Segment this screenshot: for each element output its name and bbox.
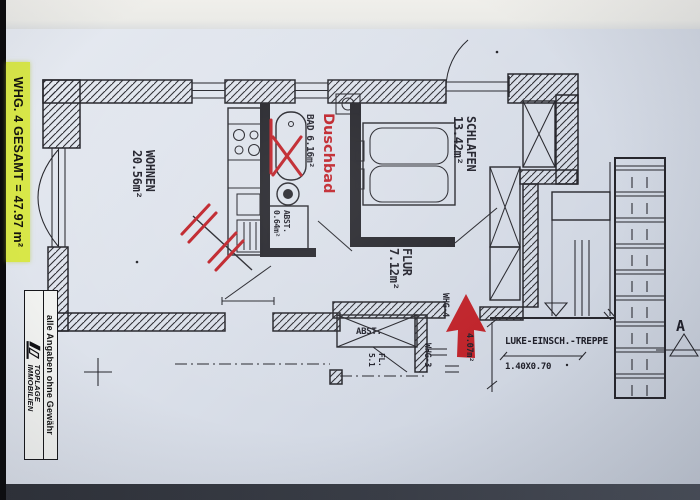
section-marker: A — [656, 317, 700, 356]
door-swing-arc — [446, 40, 468, 87]
stove-burner — [249, 145, 260, 156]
label-treppe-size: 1.40X0.70 — [505, 362, 551, 372]
disclaimer-text: alle Angaben ohne Gewähr — [43, 291, 57, 459]
label-abst: ABST. — [356, 327, 382, 337]
living-room-door — [222, 266, 274, 305]
balcony-door-swing-arc — [38, 150, 58, 246]
attic-ladder — [615, 158, 665, 398]
agency-stamp: alle Angaben ohne Gewähr TOPLAGE IMMOBIL… — [24, 290, 58, 460]
whg4-total-text: WHG. 4 GESAMT = 47.97 m² — [11, 77, 25, 247]
red-strike — [209, 233, 236, 262]
stove-burner — [234, 130, 245, 141]
label-bad-abst: ABST.0.64m² — [272, 210, 291, 237]
red-strike — [189, 213, 216, 242]
floor-plan-drawing: A WOHNEN20.56m² BA — [0, 0, 700, 500]
agency-logo-icon — [26, 339, 42, 361]
label-flur: FLUR7.12m² — [387, 248, 414, 290]
stair-area — [490, 162, 616, 320]
label-whg3: WHG-3 — [422, 343, 432, 367]
label-schlafen: SCHLAFEN13.42m² — [451, 116, 478, 171]
level-marker — [545, 303, 567, 316]
bath-door-leaf — [318, 221, 352, 251]
label-wohnen: WOHNEN20.56m² — [130, 150, 157, 198]
label-bad: BAD6.16m² — [304, 114, 315, 168]
kitchen-unit — [228, 108, 262, 255]
kitchen-sink — [237, 194, 260, 215]
stove-burner — [235, 146, 243, 154]
label-wf-area: 4.07m² — [464, 333, 474, 362]
double-bed — [355, 123, 455, 205]
label-fl: FL.5.1 — [367, 353, 386, 367]
entry-door — [446, 40, 509, 97]
agency-brand: TOPLAGE IMMOBILIEN — [27, 365, 42, 412]
whg4-total-highlight: WHG. 4 GESAMT = 47.97 m² — [6, 62, 30, 262]
stove-burner — [250, 131, 258, 139]
label-whg4: WHG-4 — [440, 293, 450, 317]
label-duschbad-red: Duschbad — [320, 113, 336, 193]
red-strike — [182, 205, 209, 234]
scanned-floorplan-photo: A WOHNEN20.56m² BA — [0, 0, 700, 500]
label-treppe: LUKE-EINSCH.-TREPPE — [505, 336, 609, 347]
bedroom-door-leaf — [455, 208, 497, 243]
section-letter: A — [676, 317, 685, 335]
